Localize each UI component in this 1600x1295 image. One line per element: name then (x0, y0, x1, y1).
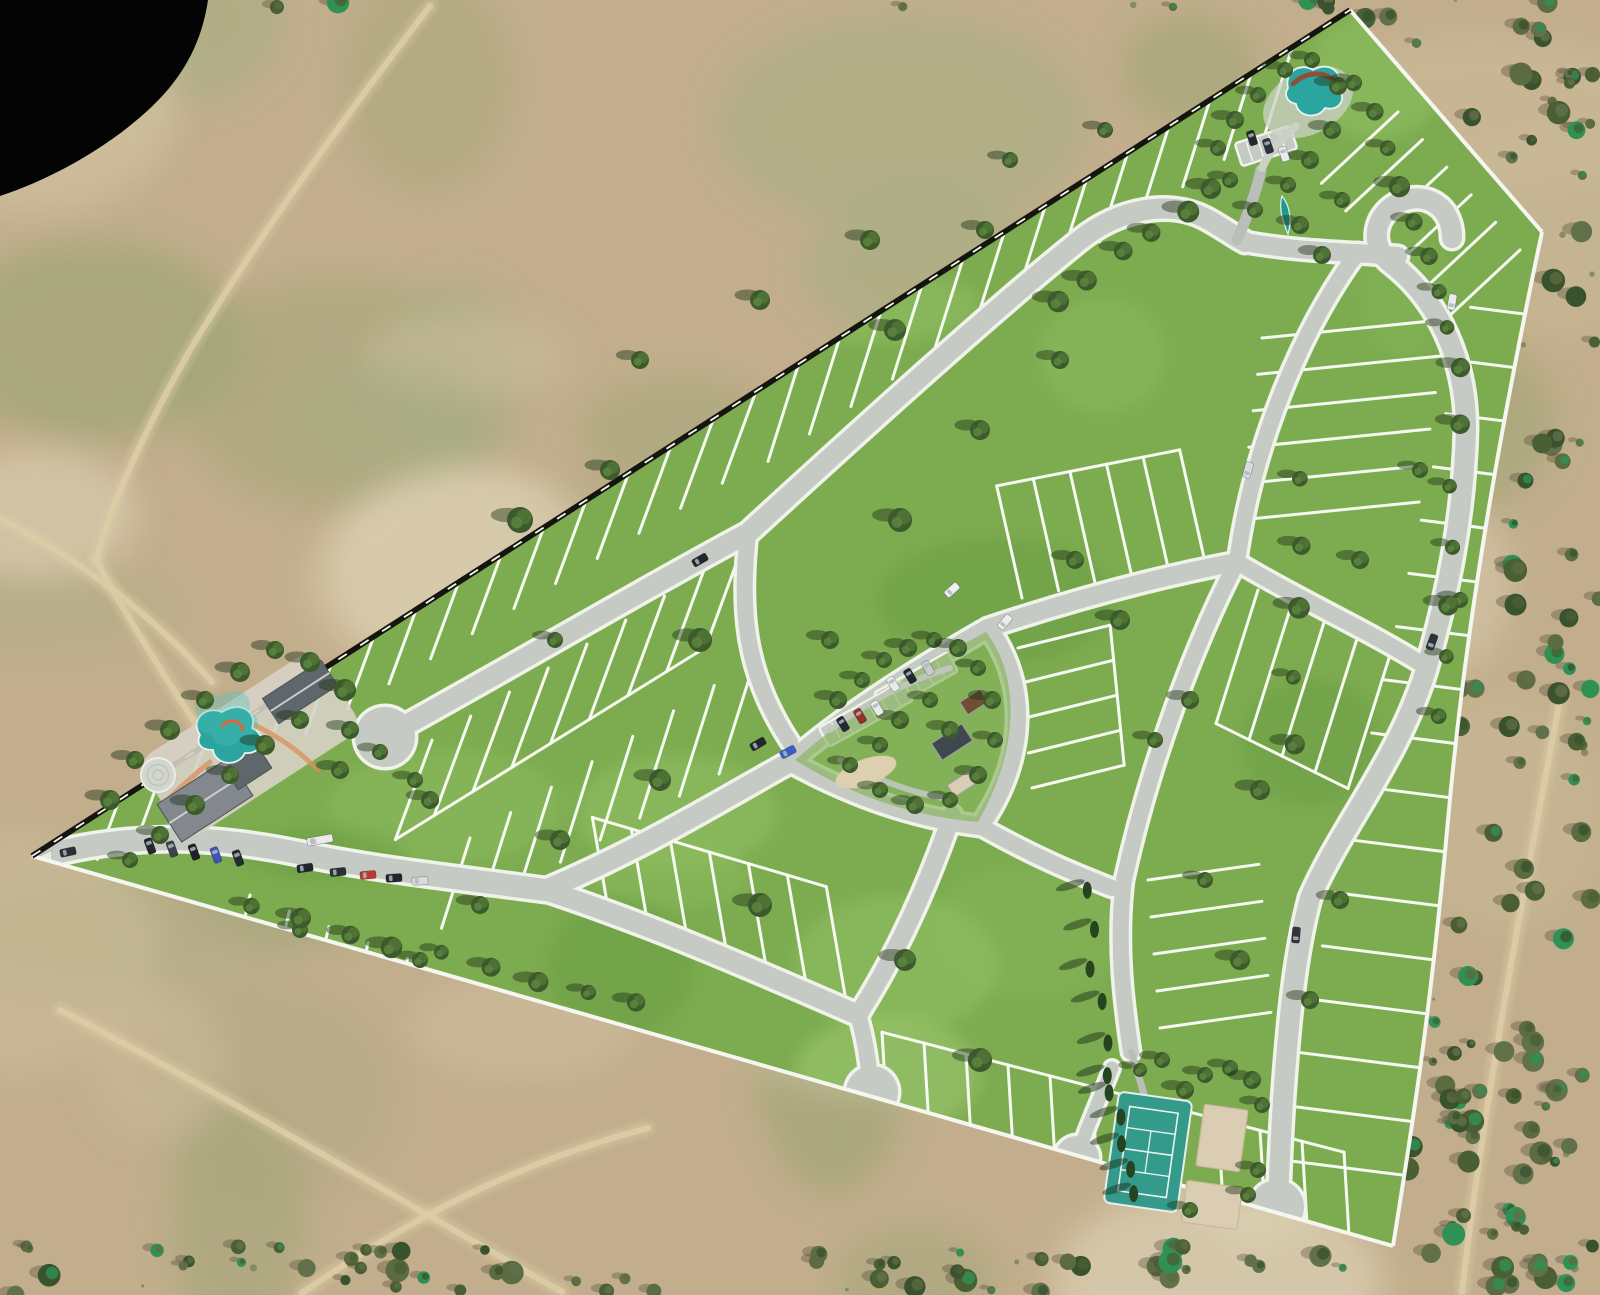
tree-canopy (1572, 775, 1578, 781)
tree-canopy (1491, 826, 1501, 836)
tree-canopy (1184, 1208, 1191, 1215)
tree-canopy (1555, 685, 1567, 697)
tree-canopy (1553, 1158, 1559, 1164)
tree-canopy (1530, 136, 1536, 142)
tree-canopy (129, 758, 137, 766)
tree-canopy (1510, 153, 1517, 160)
tree-canopy (1544, 1103, 1549, 1108)
tree-canopy (359, 1263, 366, 1270)
tree-canopy (1520, 1166, 1532, 1178)
tree-canopy (1574, 735, 1584, 745)
tree-canopy (1470, 1040, 1475, 1045)
tree-canopy (1129, 1185, 1138, 1202)
tree-canopy (1099, 128, 1106, 135)
tree-canopy (1316, 253, 1324, 261)
tree-canopy (1539, 436, 1550, 447)
tree-canopy (1550, 272, 1563, 285)
tree-canopy (409, 778, 416, 785)
tree-canopy (46, 1267, 58, 1279)
tree-canopy (1326, 128, 1334, 136)
tree-canopy (1253, 788, 1262, 797)
tree-canopy (972, 1057, 983, 1068)
tree-canopy (1184, 698, 1192, 706)
tree-canopy (1282, 183, 1289, 190)
car-windshield (310, 838, 317, 845)
tree-canopy (1342, 1265, 1346, 1269)
tree-canopy (508, 1264, 521, 1277)
tree-canopy (1442, 1078, 1453, 1089)
car (360, 870, 377, 879)
tree-canopy (1508, 896, 1518, 906)
tree-canopy (1522, 1226, 1528, 1232)
tree-canopy (1145, 230, 1153, 238)
tree-canopy (549, 638, 556, 645)
tree-canopy (1172, 4, 1177, 9)
tree-canopy (1454, 365, 1463, 374)
tree-canopy (1117, 249, 1125, 257)
tree-canopy (986, 698, 994, 706)
tree-canopy (1447, 545, 1454, 552)
tree-canopy (27, 1245, 32, 1250)
tree-canopy (414, 958, 421, 965)
tree-canopy (1553, 431, 1563, 441)
tree-canopy (1553, 1085, 1561, 1093)
tree-canopy (1567, 1140, 1576, 1149)
tree-canopy (294, 915, 303, 924)
tree-canopy (1518, 65, 1531, 78)
tree-canopy (240, 1259, 245, 1264)
desert-bush (1130, 2, 1136, 8)
tree-canopy (1181, 209, 1191, 219)
tree-canopy (394, 1283, 400, 1289)
tree-canopy (1535, 1259, 1546, 1270)
tree-canopy (972, 666, 979, 673)
tree-canopy (495, 1266, 504, 1275)
tree-canopy (1117, 1135, 1126, 1152)
tree-canopy (1511, 1090, 1520, 1099)
tree-canopy (902, 646, 910, 654)
tree-canopy (1291, 605, 1301, 615)
tree-canopy (1354, 558, 1362, 566)
tree-canopy (1581, 172, 1586, 177)
tree-canopy (1051, 299, 1061, 309)
tree-canopy (1589, 120, 1595, 126)
tree-canopy (531, 979, 540, 988)
tree-canopy (824, 638, 832, 646)
tree-canopy (1432, 1058, 1437, 1063)
tree-canopy (1523, 673, 1534, 684)
tree-canopy (1512, 596, 1524, 608)
tree-canopy (1090, 921, 1099, 938)
tree-canopy (1317, 1248, 1329, 1260)
splash-pad (141, 758, 175, 792)
tree-canopy (1515, 1222, 1521, 1228)
tree-canopy (973, 428, 982, 437)
tree-canopy (692, 637, 703, 648)
tree-canopy (1587, 682, 1597, 692)
tree-canopy (1574, 123, 1584, 133)
tree-canopy (553, 838, 562, 847)
tree-canopy (1532, 883, 1543, 894)
tree-canopy (575, 1278, 580, 1283)
tree-canopy (1567, 70, 1572, 75)
tree-canopy (1588, 891, 1599, 902)
tree-canopy (844, 763, 851, 770)
tree-canopy (1578, 440, 1582, 444)
tree-canopy (1452, 1112, 1460, 1120)
tree-canopy (1441, 603, 1450, 612)
tree-canopy (874, 743, 881, 750)
tree-canopy (1433, 1018, 1439, 1024)
tree-canopy (1054, 358, 1062, 366)
tree-canopy (944, 798, 951, 805)
tree-canopy (1386, 10, 1396, 20)
tree-canopy (1586, 718, 1591, 723)
tree-canopy (1415, 40, 1420, 45)
car (330, 867, 347, 877)
tree-canopy (1179, 1088, 1187, 1096)
tree-canopy (304, 1261, 314, 1271)
tree-canopy (1477, 1086, 1485, 1094)
tree-canopy (909, 803, 917, 811)
tree-canopy (894, 718, 902, 726)
tree-canopy (912, 1279, 924, 1291)
tree-canopy (334, 768, 342, 776)
tree-canopy (816, 1248, 825, 1257)
tree-canopy (944, 728, 952, 736)
tree-canopy (484, 965, 493, 974)
tree-canopy (1362, 10, 1373, 21)
tree-canopy (1501, 1044, 1512, 1055)
tree-canopy (1442, 326, 1449, 333)
tree-canopy (1113, 618, 1122, 627)
tree-canopy (1506, 719, 1518, 731)
tree-canopy (1295, 543, 1303, 551)
desert-bush (141, 1284, 144, 1287)
tree-canopy (1098, 993, 1107, 1010)
tree-canopy (1469, 110, 1479, 120)
tree-canopy (634, 358, 642, 366)
tree-canopy (1523, 475, 1532, 484)
tree-canopy (163, 728, 172, 737)
tree-canopy (1469, 1112, 1482, 1125)
car (412, 877, 428, 886)
tree-canopy (337, 687, 347, 697)
tree-canopy (398, 1244, 408, 1254)
tree-canopy (1306, 58, 1313, 65)
tree-canopy (103, 798, 112, 807)
tree-canopy (1573, 289, 1584, 300)
tree-canopy (1433, 714, 1440, 721)
tree-canopy (294, 928, 301, 935)
tree-canopy (1491, 1230, 1497, 1236)
tree-canopy (1560, 455, 1569, 464)
tree-canopy (1180, 1241, 1189, 1250)
tree-canopy (1252, 1168, 1259, 1175)
tree-canopy (1569, 550, 1576, 557)
tree-canopy (154, 833, 162, 841)
tree-canopy (384, 945, 394, 955)
tree-canopy (1525, 1023, 1534, 1032)
tree-canopy (990, 1287, 995, 1292)
tree-canopy (1493, 1278, 1505, 1290)
tree-canopy (1553, 636, 1562, 645)
desert-bush (1014, 1259, 1019, 1264)
tree-canopy (1083, 882, 1092, 899)
car-windshield (415, 878, 419, 884)
tree-canopy (474, 903, 482, 911)
tree-canopy (1204, 186, 1213, 195)
tree-canopy (344, 1276, 350, 1282)
tree-canopy (1004, 158, 1011, 165)
tree-canopy (1473, 682, 1483, 692)
tree-canopy (344, 933, 352, 941)
tree-canopy (1199, 1073, 1206, 1080)
tree-canopy (1568, 664, 1575, 671)
tree-canopy (1246, 1078, 1254, 1086)
tree-canopy (1512, 520, 1517, 525)
tree-canopy (972, 773, 980, 781)
tree-canopy (979, 228, 987, 236)
tree-canopy (394, 1261, 407, 1274)
tree-canopy (1086, 961, 1095, 978)
tree-canopy (1294, 477, 1301, 484)
tree-canopy (1513, 1209, 1524, 1220)
tree-canopy (1560, 931, 1572, 943)
car (386, 873, 403, 882)
tree-canopy (1242, 1193, 1249, 1200)
car-windshield (1293, 936, 1299, 940)
tree-canopy (1103, 1034, 1112, 1051)
tree-canopy (1414, 468, 1421, 475)
tree-canopy (1334, 898, 1342, 906)
tree-canopy (1156, 1058, 1163, 1065)
car-body (360, 870, 377, 879)
tree-canopy (1103, 1067, 1112, 1084)
tree-canopy (1441, 655, 1448, 662)
tree-canopy (1252, 93, 1259, 100)
tree-canopy (1080, 278, 1089, 287)
tree-canopy (856, 678, 863, 685)
tree-canopy (1593, 338, 1599, 344)
tree-canopy (1326, 4, 1333, 11)
aerial-site-plan: Aerial rendering of a triangular master-… (0, 0, 1600, 1295)
tree-canopy (924, 698, 931, 705)
desert-bush (250, 1264, 257, 1271)
tree-canopy (1518, 758, 1525, 765)
tree-canopy (1580, 1070, 1588, 1078)
tree-canopy (832, 698, 840, 706)
tree-canopy (277, 1244, 283, 1250)
tree-canopy (269, 648, 277, 656)
tree-canopy (1540, 727, 1548, 735)
tree-canopy (955, 1266, 963, 1274)
tree-canopy (483, 1246, 488, 1251)
tree-canopy (294, 718, 302, 726)
tree-canopy (1304, 998, 1312, 1006)
desert-bush (845, 1288, 849, 1292)
tree-shadow (1118, 1061, 1136, 1069)
tree-canopy (1568, 79, 1574, 85)
tree-canopy (1444, 484, 1451, 491)
desert-bush (1432, 998, 1435, 1001)
desert-patch (717, 15, 1088, 230)
tree-canopy (349, 1253, 357, 1261)
tree-canopy (1279, 68, 1286, 75)
car-body (1291, 927, 1300, 944)
tree-canopy (1536, 24, 1545, 33)
tree-canopy (258, 743, 267, 752)
tree-canopy (753, 298, 762, 307)
tree-canopy (887, 327, 897, 337)
tree-canopy (1507, 1277, 1518, 1288)
tree-canopy (1578, 825, 1589, 836)
tree-canopy (1521, 861, 1532, 872)
tree-canopy (1369, 110, 1377, 118)
tree-canopy (604, 1286, 612, 1294)
tree-canopy (1039, 1254, 1047, 1262)
tree-canopy (344, 728, 352, 736)
tree-canopy (1530, 1053, 1542, 1065)
tree-canopy (1069, 558, 1077, 566)
tree-canopy (424, 798, 432, 806)
car-body (330, 867, 347, 877)
tree-canopy (1249, 1256, 1256, 1263)
tree-canopy (459, 1286, 466, 1293)
tree-canopy (892, 1258, 899, 1265)
tree-canopy (1453, 422, 1462, 431)
tree-canopy (1590, 69, 1598, 77)
tree-canopy (959, 1250, 963, 1254)
tree-canopy (901, 3, 906, 8)
tree-canopy (1224, 178, 1231, 185)
tree-canopy (863, 238, 872, 247)
tree-canopy (892, 517, 903, 528)
tree-canopy (1249, 208, 1256, 215)
tree-canopy (1167, 1253, 1180, 1266)
tree-canopy (1382, 146, 1389, 153)
tree-canopy (603, 468, 612, 477)
tree-canopy (1185, 1266, 1190, 1271)
tree-canopy (1256, 1103, 1263, 1110)
tree-canopy (1512, 561, 1525, 574)
car-windshield (363, 872, 367, 878)
tree-canopy (623, 1275, 629, 1281)
tree-canopy (1465, 968, 1476, 979)
desert-bush (1521, 342, 1527, 348)
tree-canopy (752, 902, 763, 913)
tree-canopy (1578, 224, 1590, 236)
tree-canopy (436, 950, 443, 957)
tree-canopy (1149, 738, 1156, 745)
tree-canopy (1135, 1068, 1141, 1074)
tree-canopy (155, 1245, 162, 1252)
tree-canopy (1229, 118, 1237, 126)
tree-canopy (1461, 1210, 1469, 1218)
tree-canopy (1465, 1153, 1477, 1165)
tree-canopy (1461, 1090, 1470, 1099)
tree-canopy (952, 646, 960, 654)
tree-canopy (374, 750, 381, 757)
tree-canopy (188, 803, 197, 812)
tree-canopy (1428, 1246, 1439, 1257)
car-body (412, 877, 428, 886)
tree-canopy (630, 1000, 638, 1008)
tree-canopy (652, 777, 662, 787)
tree-canopy (1423, 254, 1431, 262)
tree-canopy (1116, 1109, 1125, 1126)
tree-canopy (1294, 223, 1302, 231)
tree-canopy (897, 957, 907, 967)
tree-canopy (1434, 290, 1441, 297)
tree-canopy (1288, 675, 1295, 682)
tree-canopy (1566, 611, 1576, 621)
tree-canopy (364, 1245, 370, 1251)
tree-canopy (511, 517, 523, 529)
tree-canopy (1304, 158, 1312, 166)
tree-canopy (1212, 146, 1219, 153)
tree-canopy (1537, 1144, 1550, 1157)
tree-canopy (303, 660, 312, 669)
tree-canopy (1065, 1256, 1074, 1265)
car-windshield (389, 875, 393, 881)
tree-canopy (1233, 958, 1242, 967)
tree-canopy (275, 2, 283, 10)
tree-canopy (1450, 1226, 1463, 1239)
tree-canopy (876, 1272, 886, 1282)
tree-canopy (1529, 1123, 1539, 1133)
tree-canopy (1408, 220, 1416, 228)
tree-canopy (187, 1257, 194, 1264)
tree-canopy (1199, 878, 1206, 885)
tree-canopy (246, 904, 253, 911)
tree-canopy (182, 1262, 187, 1267)
car-body (386, 873, 403, 882)
tree-canopy (1563, 1276, 1573, 1286)
tree-canopy (1456, 919, 1465, 928)
desert-bush (1589, 271, 1594, 276)
site-plan-rendering: Aerial rendering of a triangular master-… (0, 0, 1600, 1295)
car-windshield (333, 869, 337, 875)
tree-canopy (1288, 742, 1297, 751)
tree-canopy (874, 788, 881, 795)
tree-canopy (1568, 1257, 1576, 1265)
tree-canopy (1336, 198, 1343, 205)
tree-canopy (236, 1241, 244, 1249)
tree-canopy (1392, 184, 1402, 194)
tree-canopy (224, 773, 232, 781)
tree-canopy (1499, 1259, 1512, 1272)
tree-canopy (652, 1286, 660, 1294)
tree-canopy (1078, 1258, 1089, 1269)
tree-canopy (1332, 84, 1340, 92)
tree-canopy (1126, 1161, 1135, 1178)
tree-canopy (583, 991, 590, 998)
tree-canopy (1555, 104, 1568, 117)
tree-canopy (1452, 1048, 1460, 1056)
tree-canopy (1590, 1241, 1597, 1248)
car (1291, 927, 1300, 944)
tree-canopy (1105, 1084, 1114, 1101)
tree-canopy (1348, 81, 1355, 88)
tree-canopy (422, 1273, 429, 1280)
tree-canopy (124, 858, 131, 865)
tree-canopy (878, 658, 885, 665)
tree-canopy (1038, 1285, 1048, 1295)
tree-canopy (199, 698, 207, 706)
tree-canopy (989, 738, 996, 745)
tree-canopy (1257, 1261, 1264, 1268)
